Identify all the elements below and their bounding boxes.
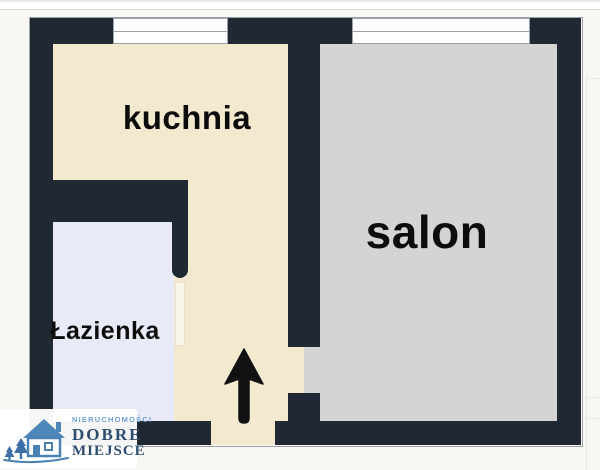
agency-logo-text: NIERUCHOMOŚCI DOBRE MIEJSCE (72, 416, 207, 459)
page-top-strip (0, 0, 600, 10)
wall-right (557, 18, 581, 445)
background-grid-line-h2 (586, 397, 600, 398)
living-room-label: salon (327, 205, 527, 259)
background-grid-line-vertical (586, 75, 587, 470)
living-room-doorway-threshold (304, 347, 320, 393)
window-icon-living-room (352, 18, 530, 44)
agency-name-line2: MIEJSCE (72, 444, 207, 459)
kitchen-label: kuchnia (87, 99, 287, 137)
wall-hall-living-room-upper (288, 44, 320, 347)
wall-kitchen-bathroom (30, 180, 188, 222)
house-logo-icon (1, 413, 71, 466)
wall-hall-living-room-lower (288, 393, 320, 445)
window-icon-kitchen (113, 18, 228, 44)
background-grid-line-h3 (586, 418, 600, 419)
living-room-doorway (288, 347, 304, 393)
agency-logo: NIERUCHOMOŚCI DOBRE MIEJSCE (0, 409, 210, 470)
bathroom-label: Łazienka (25, 317, 185, 346)
agency-tagline: NIERUCHOMOŚCI (72, 416, 207, 424)
agency-name-line1: DOBRE (72, 426, 207, 443)
background-grid-line-h1 (586, 78, 600, 79)
wall-bottom-right (275, 421, 581, 445)
wall-bathroom-door-stub (172, 222, 188, 278)
wall-left (30, 18, 53, 445)
entrance-arrow-icon (222, 347, 266, 425)
